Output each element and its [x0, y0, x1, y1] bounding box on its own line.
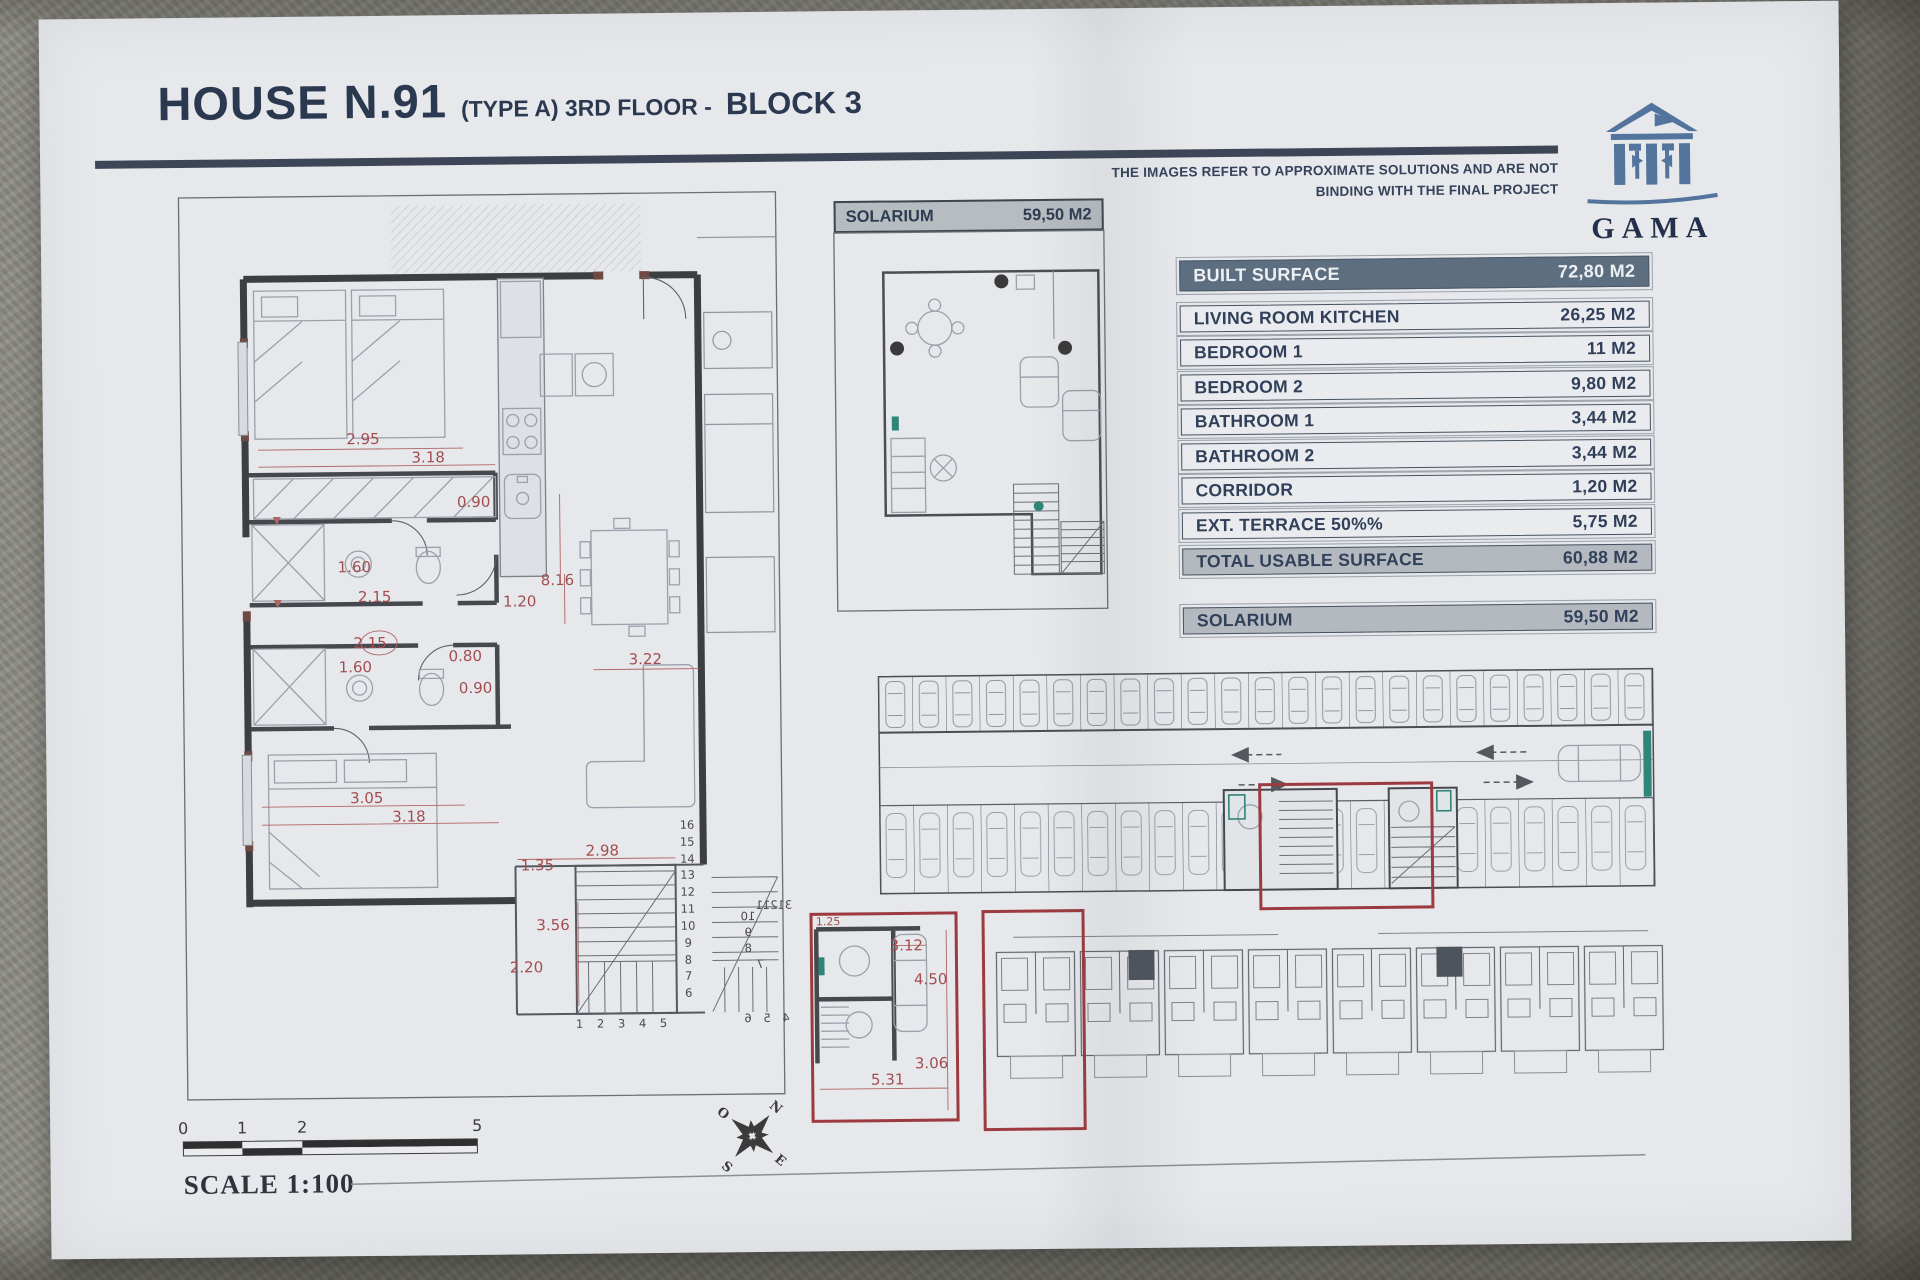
scale-tick-1: 1 [237, 1118, 247, 1137]
dim-terrace-width: 2.98 [585, 841, 619, 859]
dim-bathroom2-width: 1.60 [339, 658, 373, 676]
scale-tick-0: 0 [178, 1119, 188, 1138]
dim-terrace-height: 1.35 [521, 856, 555, 874]
dim-bathroom1-length: 2.15 [358, 588, 392, 606]
dim-bedroom1-length: 3.18 [411, 448, 445, 466]
solarium-furniture [889, 274, 1101, 512]
scale-tick-2: 2 [297, 1118, 307, 1137]
scale-label: SCALE 1:100 [184, 1168, 355, 1200]
dim-living-width: 3.22 [628, 650, 662, 668]
detail-highlight-box [811, 913, 958, 1122]
svg-text:7: 7 [757, 957, 764, 971]
dim-living-length: 8.16 [541, 571, 575, 589]
dim-door-small: 0.80 [448, 647, 482, 665]
svg-text:10: 10 [741, 909, 756, 923]
detail-dim-corner: 1.25 [816, 915, 841, 928]
parking-plan [878, 669, 1654, 913]
compass-west-label: O [714, 1104, 732, 1123]
solarium-plan [834, 230, 1108, 611]
svg-text:16: 16 [680, 818, 695, 832]
furniture [249, 277, 695, 890]
solarium-stairs [1013, 483, 1104, 574]
svg-text:1 2 3 4 5: 1 2 3 4 5 [576, 1016, 672, 1031]
dim-kitchen-opening: 0.90 [457, 493, 491, 511]
svg-text:11: 11 [681, 902, 696, 916]
dim-bathroom1-width: 1.60 [338, 558, 372, 576]
plan-sheet: HOUSE N.91 (TYPE A) 3RD FLOOR - BLOCK 3 … [39, 1, 1852, 1260]
scale-tick-5: 5 [472, 1116, 482, 1135]
detail-dim-length: 4.50 [914, 970, 948, 988]
svg-text:9: 9 [685, 936, 692, 950]
svg-text:6: 6 [685, 986, 692, 1000]
detail-dim-width-top: 3.12 [890, 936, 924, 954]
svg-text:9: 9 [744, 925, 751, 939]
dim-bedroom2-width: 3.05 [350, 789, 384, 807]
svg-text:4 5 6: 4 5 6 [740, 1011, 789, 1026]
scale-bar: 0 1 2 5 SCALE 1:100 [178, 1104, 1646, 1200]
svg-text:13: 13 [680, 868, 695, 882]
dim-corridor-width: 1.20 [503, 592, 537, 610]
main-floor-plan: 2.95 3.18 0.90 1.60 2.15 2.15 1.60 0.80 … [178, 192, 794, 1100]
dim-terrace-depth: 2.20 [510, 958, 544, 976]
svg-text:15: 15 [680, 835, 695, 849]
dim-stair-depth: 3.56 [536, 916, 570, 934]
dim-bedroom1-width: 2.95 [346, 430, 380, 448]
svg-text:31211: 31211 [755, 898, 792, 912]
block-strip-plan [983, 904, 1667, 1129]
compass-south-label: S [718, 1159, 735, 1177]
adjacent-unit-outline [697, 237, 780, 633]
svg-text:12: 12 [680, 885, 695, 899]
svg-text:10: 10 [681, 919, 696, 933]
footer-rule-line [351, 1155, 1646, 1185]
dim-door-small2: 0.90 [459, 679, 493, 697]
dim-bathroom2-length: 2.15 [353, 634, 387, 652]
drawings-canvas: 2.95 3.18 0.90 1.60 2.15 2.15 1.60 0.80 … [39, 1, 1852, 1260]
detail-dim-depth: 3.06 [915, 1054, 949, 1072]
detail-dim-width-bottom: 5.31 [871, 1070, 905, 1088]
compass-north-label: N [766, 1098, 785, 1117]
photo-of-plan-sheet: HOUSE N.91 (TYPE A) 3RD FLOOR - BLOCK 3 … [0, 0, 1920, 1280]
parking-core-2 [1389, 788, 1458, 889]
svg-text:8: 8 [745, 941, 752, 955]
garage-detail-plan: 3.12 4.50 3.06 5.31 1.25 [811, 913, 958, 1122]
car-in-lane [1558, 745, 1640, 782]
compass-east-label: E [771, 1152, 788, 1170]
svg-text:7: 7 [685, 969, 692, 983]
parking-core-1 [1224, 789, 1338, 890]
svg-text:8: 8 [685, 953, 692, 967]
dim-bedroom2-length: 3.18 [392, 807, 426, 825]
svg-text:14: 14 [680, 852, 695, 866]
